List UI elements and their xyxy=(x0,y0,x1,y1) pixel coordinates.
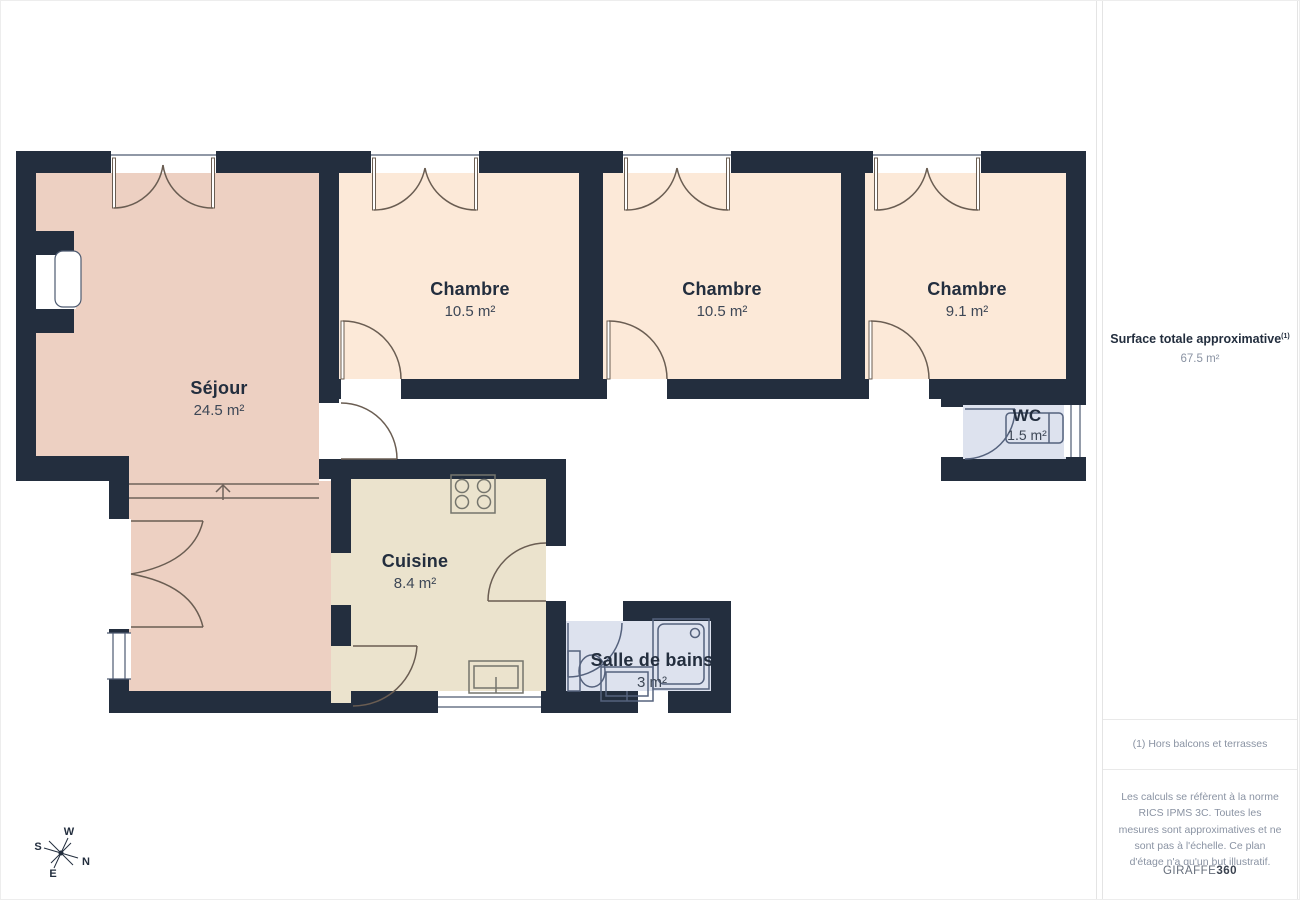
cuisine-floor xyxy=(351,479,546,691)
footnote-marker: (1) xyxy=(1281,333,1290,340)
summary-sidebar: Surface totale approximative(1) 67.5 m² … xyxy=(1102,1,1298,900)
sejour-floor xyxy=(36,173,331,691)
brand-logo: GIRAFFE360 xyxy=(1103,865,1297,877)
room-label-chambre-2: Chambre 10.5 m² xyxy=(682,279,761,320)
room-area: 10.5 m² xyxy=(430,303,509,320)
room-label-sejour: Séjour 24.5 m² xyxy=(190,378,247,419)
room-area: 24.5 m² xyxy=(190,402,247,419)
room-area: 8.4 m² xyxy=(382,575,448,592)
room-area: 9.1 m² xyxy=(927,303,1006,320)
sidebar-divider-1 xyxy=(1103,719,1297,720)
chambre2-floor xyxy=(603,173,841,379)
total-area-value: 67.5 m² xyxy=(1103,353,1297,365)
total-area-title: Surface totale approximative(1) xyxy=(1103,331,1297,347)
brand-name: GIRAFFE xyxy=(1163,865,1216,877)
total-area-title-text: Surface totale approximative xyxy=(1110,332,1281,346)
compass-west-label: W xyxy=(64,826,75,838)
room-name: Salle de bains xyxy=(591,650,714,671)
footnote-text: (1) Hors balcons et terrasses xyxy=(1103,738,1297,750)
room-area: 1.5 m² xyxy=(1007,427,1047,443)
room-name: Chambre xyxy=(682,279,761,300)
room-name: Cuisine xyxy=(382,551,448,572)
chambre3-floor xyxy=(865,173,1066,379)
sidebar-divider-2 xyxy=(1103,769,1297,770)
room-name: Séjour xyxy=(190,378,247,399)
room-label-chambre-1: Chambre 10.5 m² xyxy=(430,279,509,320)
room-area: 3 m² xyxy=(591,674,714,691)
floorplan-drawing: W S N E xyxy=(1,1,1101,900)
wall-niche-fixture xyxy=(55,251,81,307)
room-label-salle-de-bains: Salle de bains 3 m² xyxy=(591,650,714,691)
plan-sidebar-divider xyxy=(1096,1,1097,900)
room-name: WC xyxy=(1007,406,1047,426)
compass-icon: W S N E xyxy=(34,826,90,880)
compass-north-label: N xyxy=(82,856,90,868)
room-name: Chambre xyxy=(927,279,1006,300)
brand-suffix: 360 xyxy=(1216,865,1237,877)
room-area: 10.5 m² xyxy=(682,303,761,320)
compass-south-label: S xyxy=(34,841,41,853)
disclaimer-text: Les calculs se réfèrent à la norme RICS … xyxy=(1103,789,1297,870)
room-name: Chambre xyxy=(430,279,509,300)
room-label-wc: WC 1.5 m² xyxy=(1007,406,1047,443)
sejour-corridor-door xyxy=(341,403,397,459)
room-label-chambre-3: Chambre 9.1 m² xyxy=(927,279,1006,320)
floorplan-page: W S N E Séjour 24.5 m² Chambre 10.5 m² C… xyxy=(0,0,1300,900)
room-label-cuisine: Cuisine 8.4 m² xyxy=(382,551,448,592)
compass-east-label: E xyxy=(49,868,56,880)
